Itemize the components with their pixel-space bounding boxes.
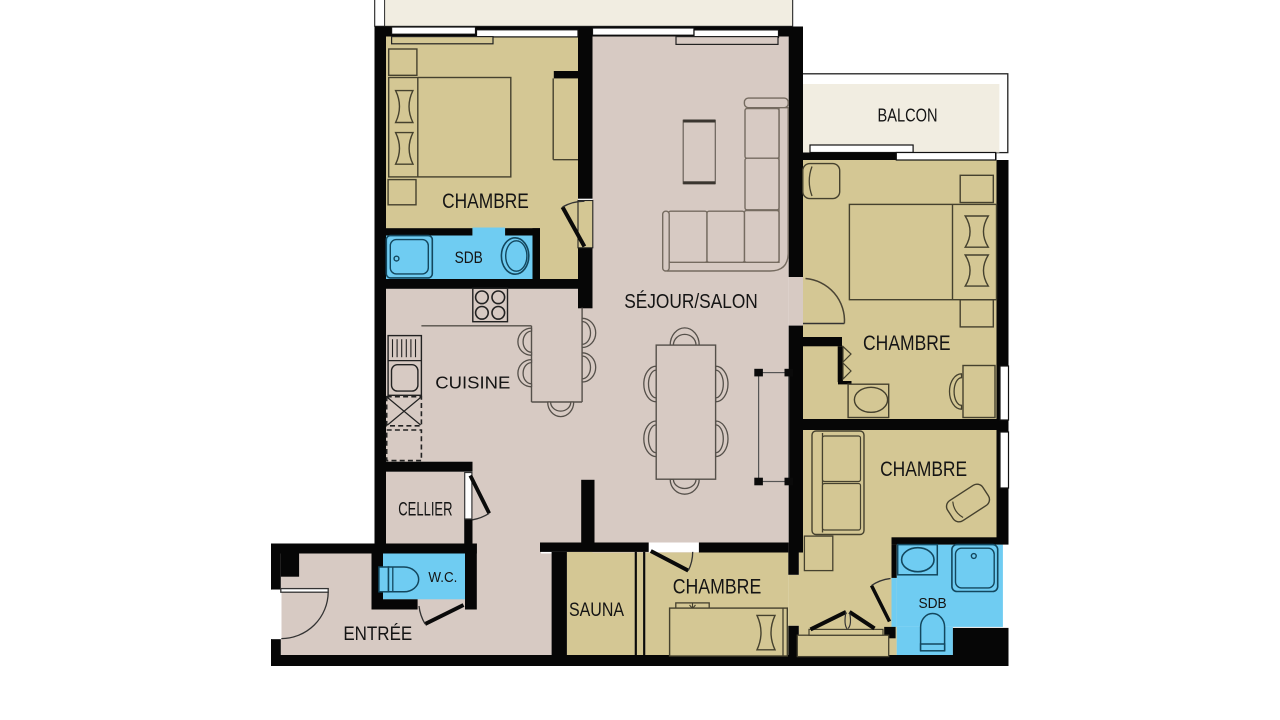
svg-text:SDB: SDB (455, 249, 483, 267)
svg-text:CUISINE: CUISINE (435, 372, 510, 392)
svg-text:SÉJOUR/SALON: SÉJOUR/SALON (624, 290, 758, 313)
svg-text:CHAMBRE: CHAMBRE (442, 189, 529, 213)
svg-text:CHAMBRE: CHAMBRE (880, 457, 967, 481)
svg-text:CHAMBRE: CHAMBRE (863, 332, 951, 355)
svg-text:ENTRÉE: ENTRÉE (343, 622, 412, 645)
svg-text:SDB: SDB (919, 596, 947, 612)
svg-text:CELLIER: CELLIER (398, 499, 452, 521)
svg-text:CHAMBRE: CHAMBRE (673, 575, 762, 599)
svg-text:W.C.: W.C. (428, 570, 457, 586)
svg-text:SAUNA: SAUNA (569, 600, 624, 621)
svg-text:BALCON: BALCON (878, 106, 938, 126)
